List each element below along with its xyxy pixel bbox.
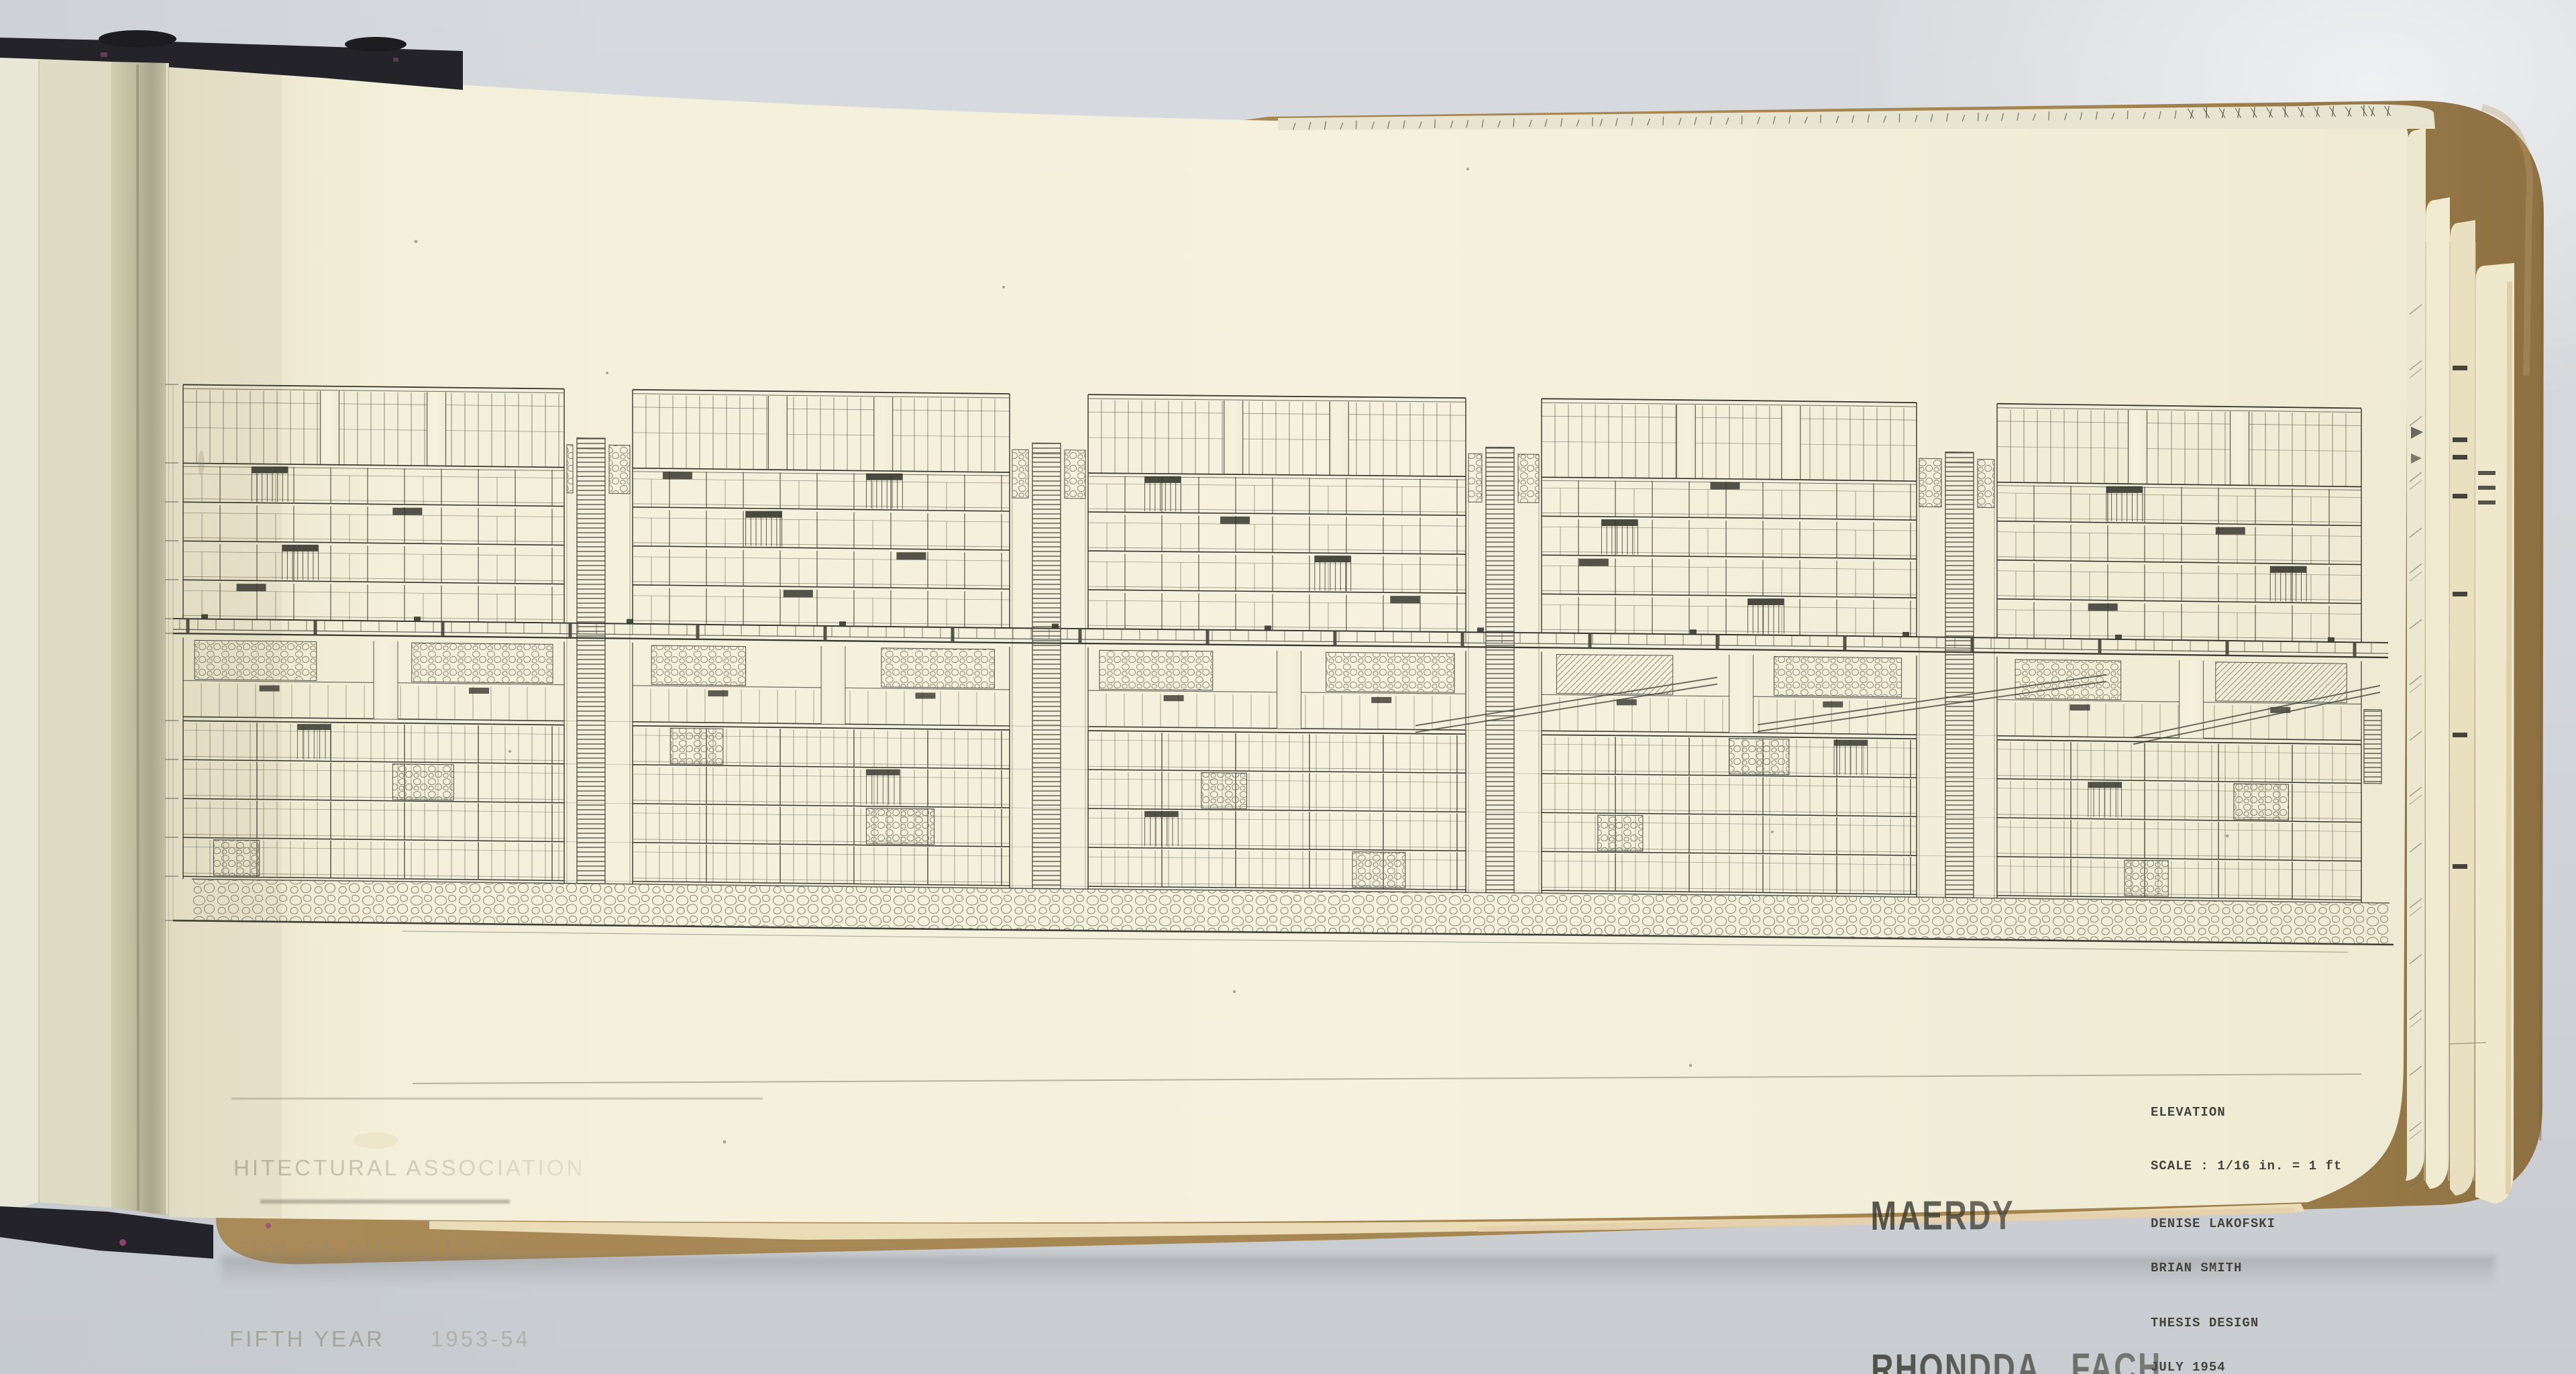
school-stamp-top-rule bbox=[231, 1098, 763, 1100]
info-author-1: DENISE LAKOFSKI bbox=[2151, 1216, 2342, 1231]
photo-of-portfolio: MAERDY RHONDDA FACH HITECTURAL ASSOCIATI… bbox=[0, 0, 2576, 1374]
school-stamp: HITECTURAL ASSOCIATION OOL OF ARCHITECTU… bbox=[233, 1104, 585, 1374]
title-stamp-line2: RHONDDA FACH bbox=[1871, 1342, 2162, 1374]
info-author-2: BRIAN SMITH bbox=[2151, 1261, 2342, 1275]
school-stamp-year-value: 1953-54 bbox=[431, 1326, 531, 1351]
info-date: JULY 1954 bbox=[2151, 1360, 2342, 1374]
underlying-page-top-edge bbox=[1278, 105, 2435, 130]
drawing-info-block: ELEVATION SCALE : 1/16 in. = 1 ft DENISE… bbox=[2151, 1075, 2342, 1374]
school-stamp-line1: HITECTURAL ASSOCIATION bbox=[233, 1155, 585, 1181]
info-elevation-label: ELEVATION bbox=[2151, 1105, 2342, 1120]
left-page-stack bbox=[0, 58, 169, 1216]
school-stamp-line2: OOL OF ARCHITECTURE bbox=[240, 1236, 585, 1261]
right-end-kiosk bbox=[2364, 710, 2381, 784]
project-title-stamp: MAERDY RHONDDA FACH bbox=[1870, 1087, 2162, 1374]
title-stamp-line1: MAERDY bbox=[1870, 1189, 2161, 1241]
info-scale: SCALE : 1/16 in. = 1 ft bbox=[2151, 1159, 2342, 1173]
school-stamp-line3: FIFTH YEAR1953-54 bbox=[229, 1326, 585, 1352]
page-gutter bbox=[111, 62, 169, 1216]
school-stamp-year-label: FIFTH YEAR bbox=[229, 1326, 385, 1351]
info-project-type: THESIS DESIGN bbox=[2151, 1316, 2342, 1330]
main-page bbox=[169, 62, 2408, 1222]
right-page-stack bbox=[2406, 127, 2514, 1204]
